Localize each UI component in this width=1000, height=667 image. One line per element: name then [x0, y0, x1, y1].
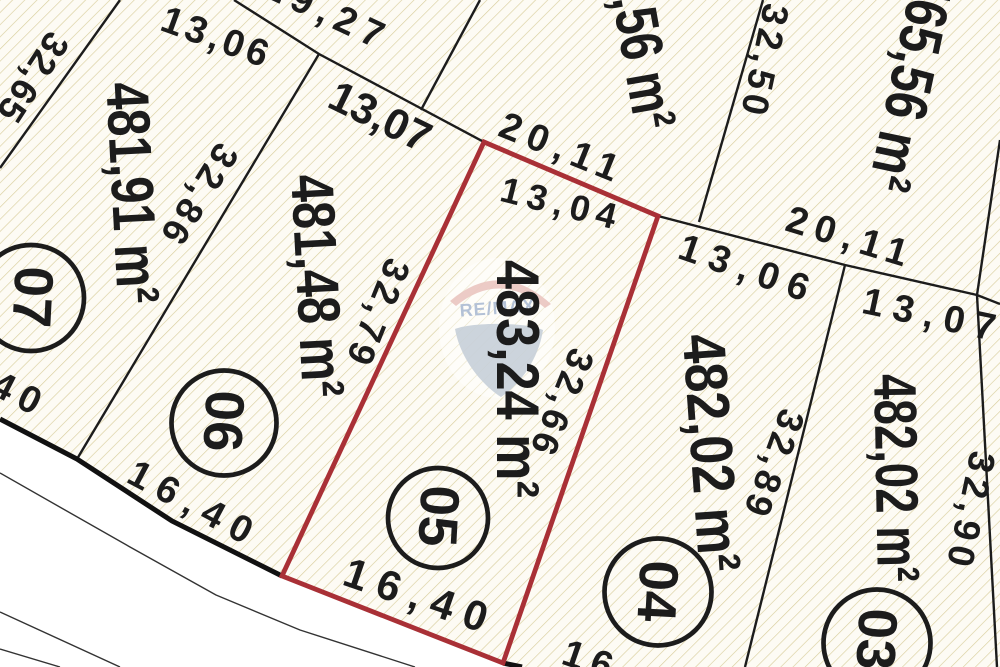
- svg-text:03: 03: [844, 607, 909, 667]
- svg-text:04: 04: [625, 559, 690, 624]
- svg-text:07: 07: [0, 265, 65, 329]
- svg-text:482,02 m²: 482,02 m²: [861, 373, 931, 582]
- svg-text:06: 06: [191, 389, 256, 453]
- svg-text:483,24 m²: 483,24 m²: [484, 260, 551, 498]
- svg-text:05: 05: [406, 484, 471, 548]
- svg-text:481,48 m²: 481,48 m²: [278, 173, 358, 399]
- svg-text:481,91 m²: 481,91 m²: [93, 80, 172, 305]
